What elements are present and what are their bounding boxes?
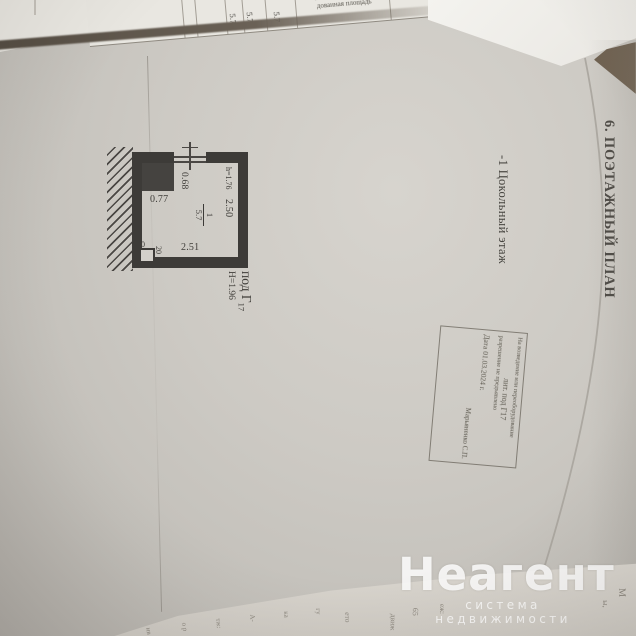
no-permission-stamp: На возведение или переоборудование лит. … xyxy=(428,325,528,468)
height-label: Н=1.96 xyxy=(226,271,236,311)
dim-niche-height: 20 xyxy=(154,246,163,254)
table-cell-value: 5.7 xyxy=(272,11,283,22)
section-title: 6. ПОЭТАЖНЫЙ ПЛАН xyxy=(600,120,617,299)
photo-of-technical-passport-page: 5.7 5.7 5.7 Самовольно возведен- ная или… xyxy=(0,0,636,636)
niche-square xyxy=(139,248,155,263)
watermark-tagline: система недвижимости xyxy=(398,598,608,626)
building-label: под Г17 xyxy=(236,271,254,311)
previous-page-table-strip: 5.7 5.7 5.7 Самовольно возведен- ная или… xyxy=(83,0,470,47)
table-cell-value: 5.7 xyxy=(228,13,239,24)
building-label-subscript: 17 xyxy=(236,303,246,312)
table-grid-line xyxy=(434,0,442,15)
room-area: 5.7 xyxy=(194,204,205,226)
page-edge-curve xyxy=(0,0,636,636)
ground-hatching xyxy=(107,147,133,271)
wall-right xyxy=(238,152,248,268)
table-cell-value: 5.7 xyxy=(245,12,256,23)
floor-caption: -1 Цокольный этаж xyxy=(495,155,510,264)
dim-niche-width: 30 xyxy=(137,240,145,249)
table-grid-line xyxy=(290,0,298,28)
dim-closet: 0.77 xyxy=(150,194,168,205)
dim-right: 2.50 xyxy=(223,199,234,217)
dim-top-opening: 0.68 xyxy=(179,172,189,189)
table-header-cell: Самовольно возведен- ная или переобору- … xyxy=(298,0,390,12)
ceiling-height-note: h=1.76 xyxy=(224,167,233,190)
page-frame-line xyxy=(147,56,162,612)
binding-gap-triangle xyxy=(594,42,636,94)
watermark: Неагент система недвижимости xyxy=(398,552,608,626)
table-grid-line xyxy=(178,0,186,38)
room-number-area-fraction: 1 5.7 xyxy=(194,204,214,226)
watermark-logo-text: Неагент xyxy=(398,552,608,598)
room-number: 1 xyxy=(205,204,215,226)
building-label-block: под Г17 Н=1.96 xyxy=(226,271,254,311)
table-grid-line xyxy=(261,0,269,30)
bottom-page-edge xyxy=(0,552,636,636)
dimension-tick-cross xyxy=(182,147,198,149)
dim-bottom: 2.51 xyxy=(181,242,199,253)
top-left-page-crease xyxy=(34,0,36,15)
table-grid-line xyxy=(191,0,199,37)
closet-block xyxy=(142,163,174,191)
photo-vignette xyxy=(0,0,636,636)
